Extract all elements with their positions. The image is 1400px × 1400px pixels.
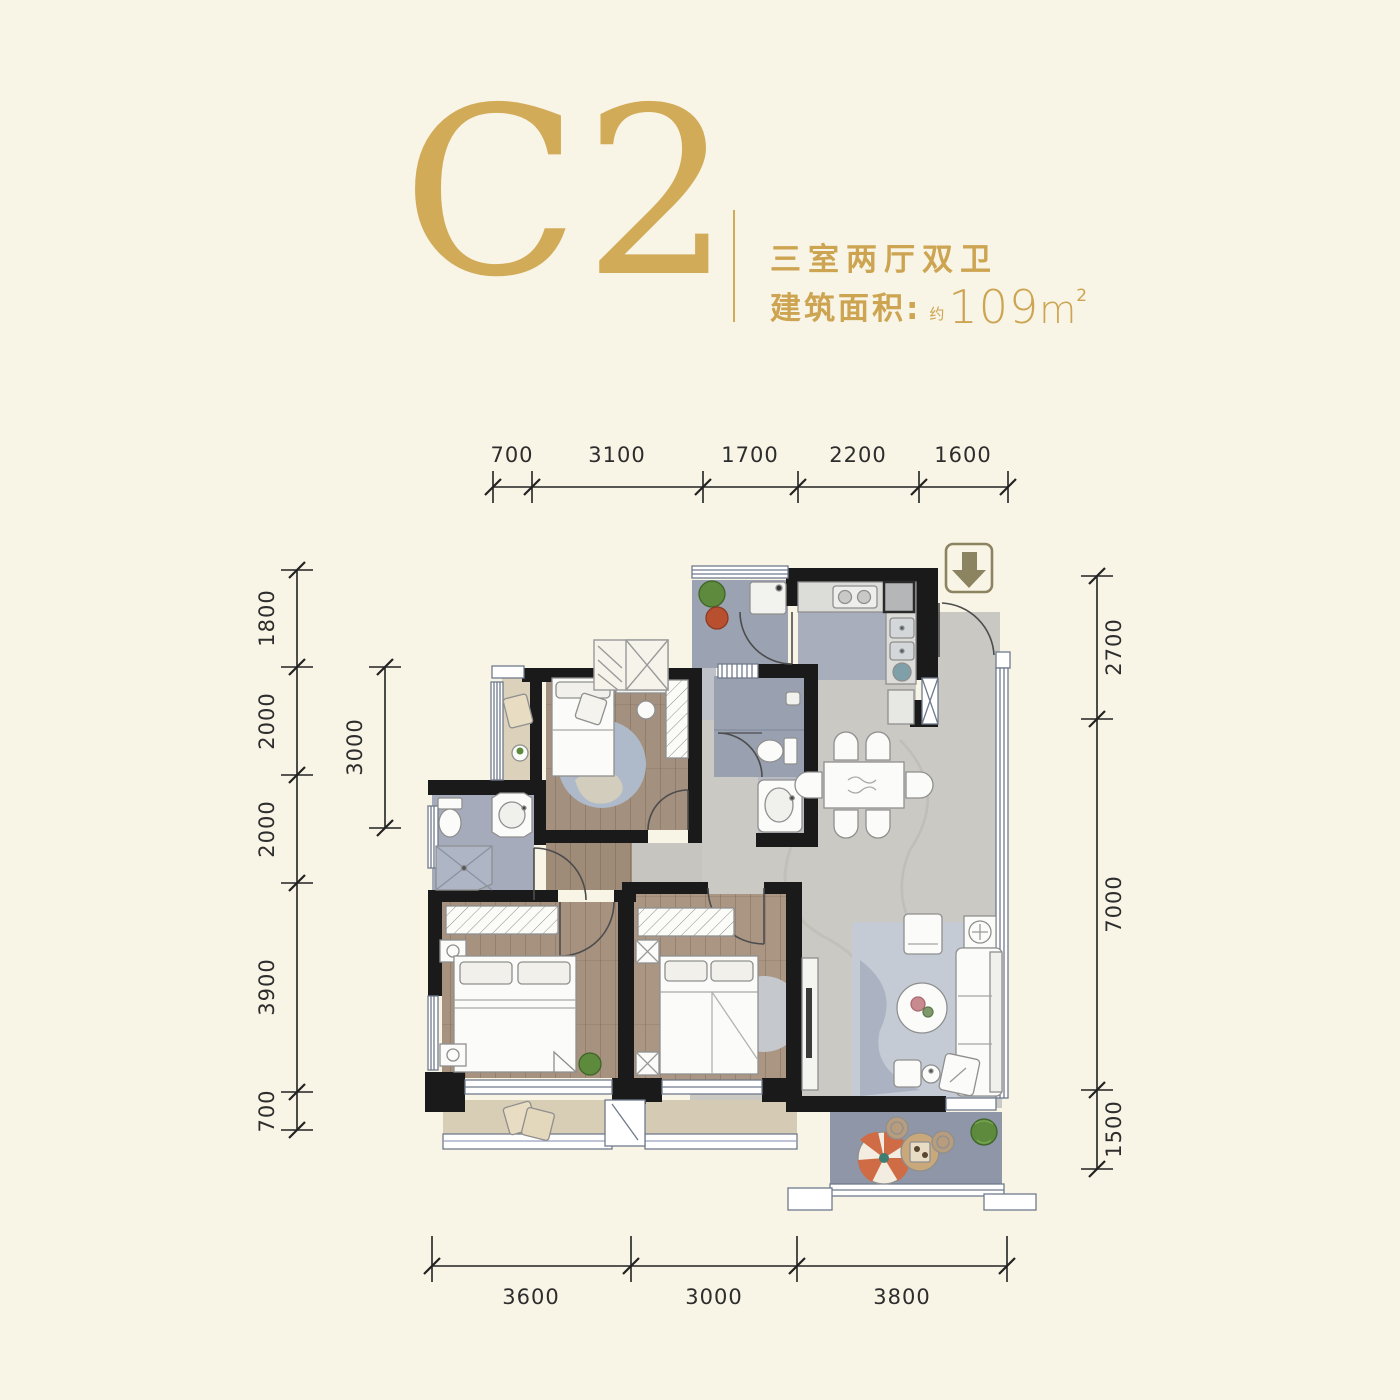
lounge-balcony-floor — [502, 678, 532, 780]
floorplan-page: C2 三室两厅双卫 建筑面积:约109m2 — [0, 0, 1400, 1400]
elevator-shaft — [594, 640, 668, 690]
down-arrow-glyph — [952, 552, 986, 588]
dim-left-4: 3900 — [255, 958, 279, 1015]
window-master-left — [428, 996, 438, 1070]
wall — [788, 568, 938, 582]
terrace-stub — [984, 1194, 1036, 1210]
wardrobe-master — [446, 906, 558, 934]
nightstand — [440, 1044, 466, 1066]
entry-door-jamb — [996, 652, 1010, 668]
flower-decor — [923, 1007, 933, 1017]
entry-floor — [938, 612, 1000, 728]
dim-left-2: 2000 — [255, 692, 279, 749]
wall — [632, 1078, 662, 1102]
wall — [428, 780, 546, 795]
corner-basin-icon — [786, 692, 800, 705]
dim-ticks — [432, 1236, 1007, 1282]
window-bedroom1-top — [492, 666, 524, 678]
stool — [637, 701, 655, 719]
flower-plant-icon — [706, 607, 728, 629]
entry-arrow-icon — [946, 544, 992, 592]
dim-right-3: 1500 — [1102, 1100, 1126, 1157]
wall — [756, 833, 806, 847]
wall — [530, 680, 542, 780]
basin-icon — [499, 802, 525, 828]
dining-table — [824, 762, 904, 808]
wall — [622, 882, 708, 894]
dim-top-5: 1600 — [934, 443, 991, 467]
wall — [428, 890, 558, 902]
faucet-dot — [522, 806, 526, 810]
ottoman — [894, 1060, 921, 1087]
dining-chair — [834, 732, 858, 760]
bed-pillow — [518, 962, 570, 984]
dim-top-3: 1700 — [721, 443, 778, 467]
parasol-center — [879, 1153, 889, 1163]
sofa-back — [990, 952, 1002, 1092]
dim-top-1: 700 — [490, 443, 533, 467]
wall — [425, 1072, 465, 1112]
wall — [758, 664, 806, 678]
kitchen-mat — [888, 690, 914, 724]
dim-bottom-1: 3600 — [502, 1285, 559, 1309]
stool — [932, 1131, 954, 1153]
terrace-planter — [788, 1188, 832, 1210]
bed-pillow — [711, 961, 753, 981]
wall — [786, 882, 802, 1096]
flower-decor — [911, 997, 925, 1011]
dim-left-1: 1800 — [255, 589, 279, 646]
basin-icon — [765, 788, 793, 822]
drain-dot — [462, 866, 467, 871]
dining-chair — [834, 810, 858, 838]
window-living-bottom — [946, 1098, 996, 1110]
louvre-lines — [722, 664, 752, 678]
dining-chair — [795, 772, 822, 798]
side-table — [922, 1065, 940, 1083]
faucet-dot — [790, 796, 794, 800]
toilet-tank — [438, 798, 462, 809]
cup-dot — [914, 1146, 920, 1152]
wall — [762, 1078, 788, 1102]
plant-icon — [579, 1053, 601, 1075]
dim-left-3: 2000 — [255, 800, 279, 857]
dim-right-1: 2700 — [1102, 618, 1126, 675]
wall — [786, 1096, 946, 1112]
cup-dot — [922, 1152, 928, 1158]
bed-pillow — [665, 961, 707, 981]
toilet-icon — [439, 809, 461, 837]
burner — [858, 591, 871, 604]
dim-top-2: 3100 — [588, 443, 645, 467]
decor-dot — [929, 1069, 933, 1073]
serving-tray — [910, 1142, 930, 1162]
dim-left-inner-1: 3000 — [343, 718, 367, 775]
plant-icon — [699, 581, 725, 607]
dining-chair — [906, 772, 933, 798]
wall — [688, 668, 702, 843]
faucet-dot — [900, 649, 904, 653]
wall — [804, 664, 818, 847]
tv-icon — [806, 988, 812, 1058]
armchair — [904, 914, 942, 954]
wall — [618, 894, 634, 1078]
dim-bottom-2: 3000 — [685, 1285, 742, 1309]
wall — [916, 580, 938, 680]
toilet-icon — [757, 740, 783, 762]
wall — [538, 830, 648, 843]
stool — [886, 1117, 908, 1139]
dim-right-2: 7000 — [1102, 875, 1126, 932]
floor-cushion — [521, 1107, 555, 1141]
washer-knob — [776, 585, 782, 591]
dim-bottom-3: 3800 — [873, 1285, 930, 1309]
wall — [688, 830, 702, 843]
dining-chair — [866, 810, 890, 838]
burner — [839, 591, 852, 604]
plant-icon — [517, 748, 524, 755]
wall — [764, 882, 788, 894]
toilet-tank — [784, 738, 797, 764]
dining-chair — [866, 732, 890, 760]
window-utility-top — [692, 566, 788, 578]
fridge-icon — [884, 582, 914, 612]
wardrobe-bedroom1 — [666, 680, 688, 758]
dim-left-5: 700 — [255, 1089, 279, 1132]
bed-pillow — [460, 962, 512, 984]
wardrobe-bedroom2 — [638, 908, 734, 936]
plant-icon — [971, 1119, 997, 1145]
floorplan-drawing: 700 3100 1700 2200 1600 1800 2000 2000 3… — [0, 0, 1400, 1400]
faucet-dot — [900, 626, 904, 630]
dim-top-4: 2200 — [829, 443, 886, 467]
vestibule-planks — [546, 843, 632, 890]
kitchen-appliance — [893, 663, 911, 681]
